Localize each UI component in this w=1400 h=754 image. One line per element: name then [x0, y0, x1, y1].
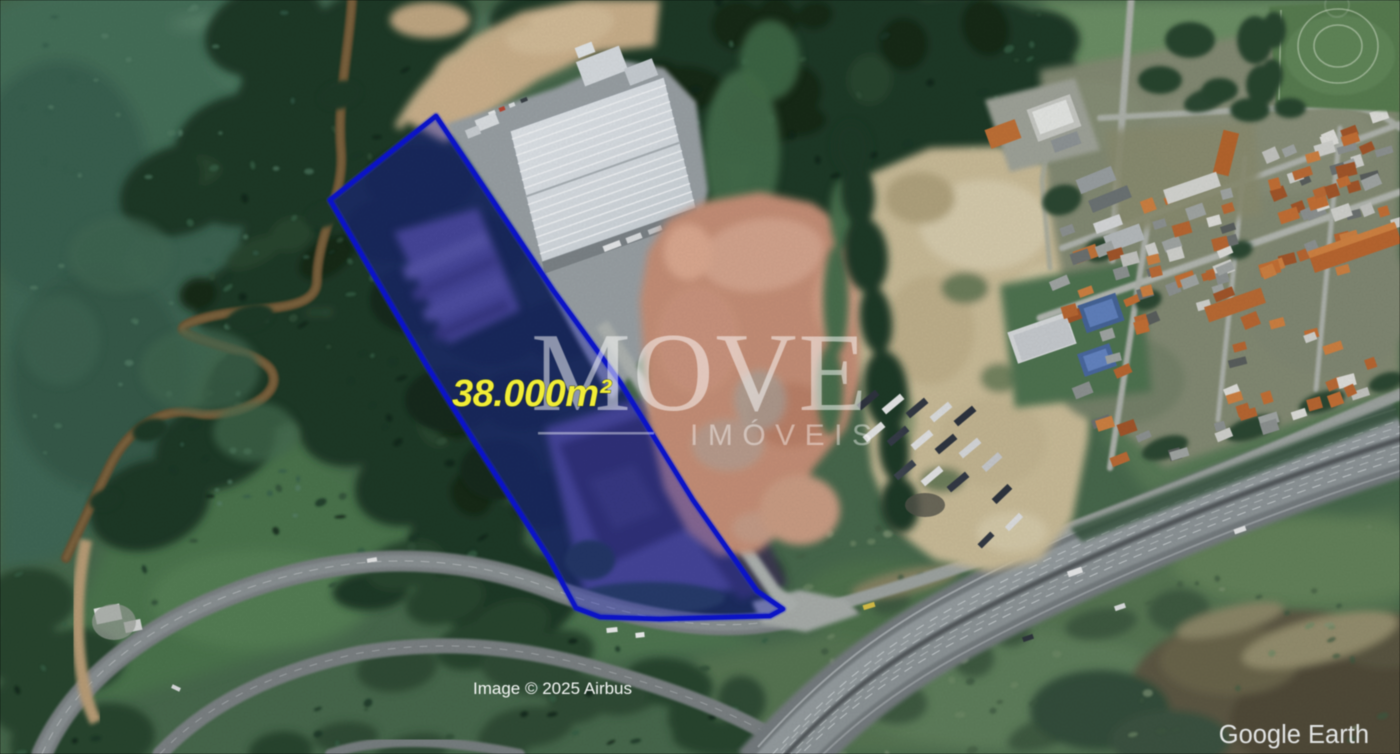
svg-text:38.000m²: 38.000m²: [452, 373, 613, 415]
svg-text:Image © 2025 Airbus: Image © 2025 Airbus: [473, 679, 632, 698]
svg-text:IMÓVEIS: IMÓVEIS: [690, 419, 882, 452]
svg-text:Google Earth: Google Earth: [1219, 721, 1369, 749]
